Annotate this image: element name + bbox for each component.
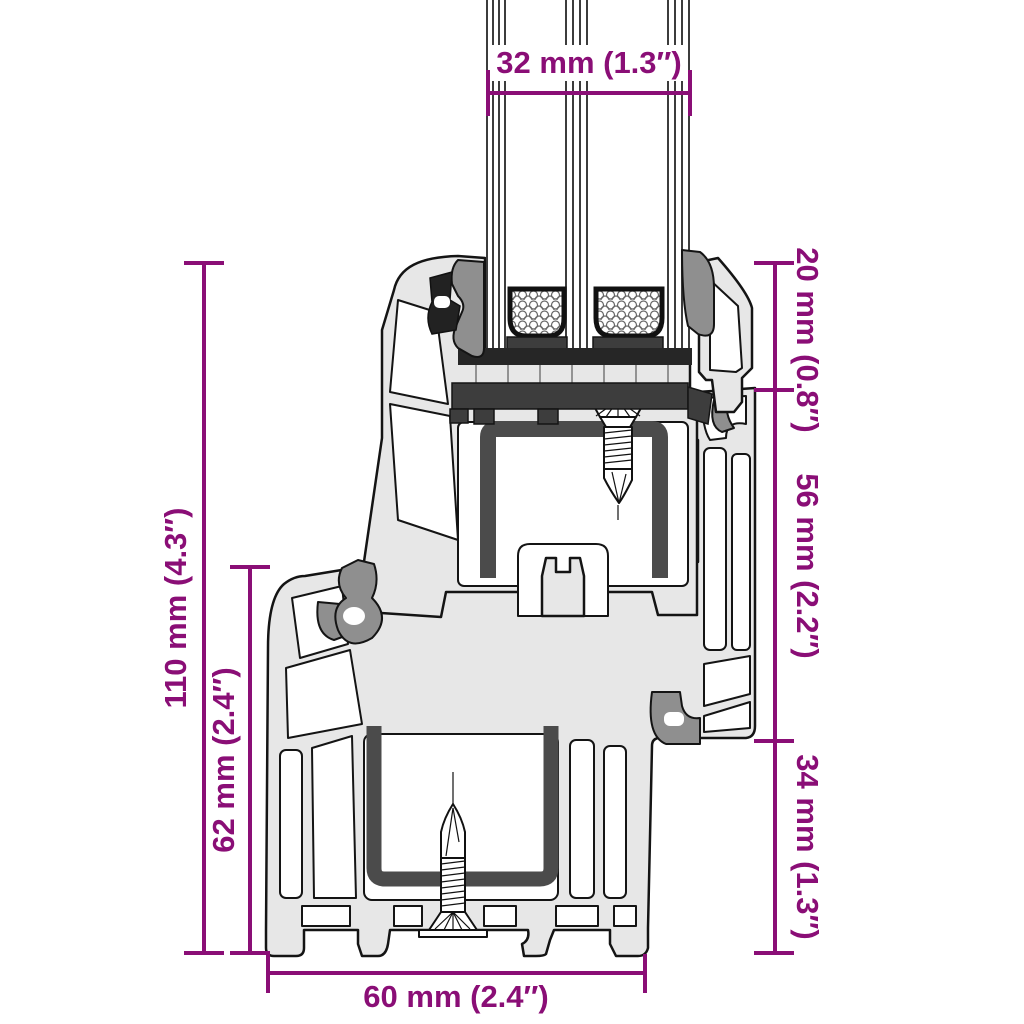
diagram-canvas: 32 mm (1.3″) 110 mm (4.3″) 62 mm (2.4″) … bbox=[0, 0, 1024, 1024]
dimension-label-lower-height: 34 mm (1.3″) bbox=[789, 754, 825, 939]
dimension-label-glazing-width: 32 mm (1.3″) bbox=[490, 45, 687, 81]
dimension-label-frame-depth: 60 mm (2.4″) bbox=[363, 979, 548, 1015]
dimension-label-total-height: 110 mm (4.3″) bbox=[158, 508, 194, 709]
dimension-label-middle-height: 56 mm (2.2″) bbox=[789, 473, 825, 658]
dimension-label-frame-height: 62 mm (2.4″) bbox=[206, 667, 242, 852]
profile-drawing bbox=[0, 0, 1024, 1024]
dimension-label-top-offset: 20 mm (0.8″) bbox=[789, 247, 825, 432]
